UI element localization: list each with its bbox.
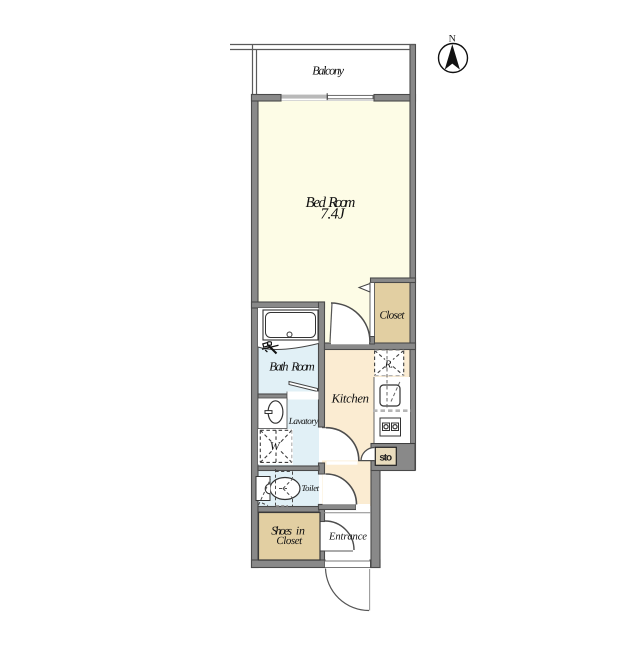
svg-text:Toilet: Toilet: [302, 483, 320, 493]
svg-text:7.4J: 7.4J: [320, 206, 346, 223]
svg-text:Kitchen: Kitchen: [331, 392, 369, 406]
svg-text:W: W: [270, 439, 281, 453]
svg-text:Closet: Closet: [380, 310, 406, 322]
svg-text:Balcony: Balcony: [312, 64, 344, 78]
svg-text:Closet: Closet: [276, 535, 303, 547]
svg-text:Bath: Bath: [269, 360, 288, 374]
svg-text:Room: Room: [290, 360, 314, 374]
svg-text:sto: sto: [379, 452, 392, 463]
svg-text:Lavatory: Lavatory: [288, 417, 319, 427]
svg-text:Entrance: Entrance: [328, 532, 367, 543]
svg-text:N: N: [449, 34, 456, 45]
svg-text:R.: R.: [384, 359, 394, 371]
